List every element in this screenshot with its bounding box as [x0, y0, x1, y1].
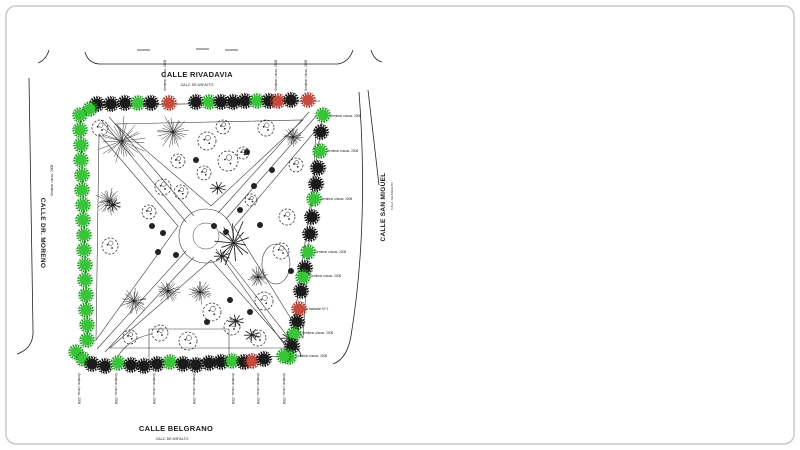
canopy-dot	[201, 171, 203, 173]
trunk-dot	[132, 299, 136, 303]
canopy-outline	[123, 330, 137, 344]
canopy-inner	[129, 333, 133, 337]
canopy-tree-icon	[203, 303, 221, 321]
canopy-outline	[179, 332, 197, 350]
shrub-dot	[244, 149, 250, 155]
planting-annotation: Sembrar c/acac. 2008	[163, 60, 167, 91]
canopy-dot	[150, 213, 152, 215]
burst-ray	[174, 133, 180, 140]
canopy-outline	[155, 179, 171, 195]
tree-fill	[80, 289, 91, 300]
perimeter-tree-icon	[225, 94, 240, 109]
canopy-dot	[265, 302, 267, 304]
planting-annotation: Sembrar c/acac. 2008	[50, 165, 54, 196]
trunk-dot	[256, 275, 260, 279]
canopy-tree-icon	[142, 205, 156, 219]
tree-fill	[239, 95, 250, 106]
planting-annotation: Sembrar c/acac. 2008	[256, 373, 260, 404]
burst-ray	[107, 124, 121, 140]
canopy-dot	[189, 342, 191, 344]
canopy-tree-icon	[92, 120, 108, 136]
planting-annotation: Sembrar c/acac. 2008	[321, 197, 352, 201]
canopy-dot	[293, 163, 295, 165]
tree-fill	[78, 229, 89, 240]
canopy-inner	[186, 335, 191, 340]
tree-fill	[99, 360, 110, 371]
street-line	[368, 90, 379, 185]
transplant-annotation: A trasladar Nº 2	[306, 307, 328, 311]
canopy-outline	[171, 154, 185, 168]
trunk-dot	[171, 130, 175, 134]
shrub-dot	[251, 183, 257, 189]
canopy-dot	[160, 185, 162, 187]
canopy-inner	[205, 135, 210, 140]
perimeter-tree-icon	[312, 143, 327, 158]
shrub-dot	[269, 167, 275, 173]
tree-fill	[215, 96, 226, 107]
starburst-tree-icon	[98, 116, 145, 163]
burst-ray	[103, 142, 120, 153]
trunk-dot	[166, 289, 170, 293]
trunk-dot	[120, 139, 124, 143]
canopy-tree-icon	[258, 120, 274, 136]
shrub-dot	[223, 229, 229, 235]
perimeter-tree-icon	[310, 160, 325, 175]
shrub-dot	[227, 297, 233, 303]
trunk-dot	[291, 135, 295, 139]
starburst-tree-icon	[157, 282, 180, 302]
perimeter-tree-icon	[286, 326, 301, 341]
burst-ray	[105, 203, 109, 212]
canopy-dot	[224, 159, 226, 161]
street-label-west: CALLE DR. MORENO	[39, 198, 46, 269]
burst-ray	[167, 125, 172, 131]
burst-ray	[202, 293, 210, 298]
palm-tree-icon	[210, 182, 226, 195]
canopy-tree-icon	[152, 325, 168, 341]
street-line	[371, 50, 382, 62]
perimeter-tree-icon	[313, 124, 328, 139]
planting-annotation: Sembrar c/acac. 2008	[302, 331, 333, 335]
perimeter-tree-icon	[117, 95, 132, 110]
canopy-outline	[218, 151, 238, 171]
tree-fill	[132, 97, 143, 108]
burst-ray	[103, 129, 120, 140]
burst-ray	[235, 245, 243, 255]
tree-fill	[302, 94, 313, 105]
canopy-dot	[213, 313, 215, 315]
trunk-dot	[221, 255, 223, 257]
walkway-path	[149, 329, 229, 361]
tree-fill	[288, 328, 299, 339]
planting-annotation: Sembrar c/acac. 2008	[282, 373, 286, 404]
canopy-tree-icon	[218, 151, 238, 171]
shrub-dot	[247, 309, 253, 315]
canopy-tree-icon	[289, 158, 303, 172]
canopy-dot	[157, 331, 159, 333]
planting-annotation: Sembrar c/acac. 2008	[231, 373, 235, 404]
palm-tree-icon	[228, 315, 244, 328]
starburst-tree-icon	[248, 266, 268, 286]
canopy-outline	[152, 325, 168, 341]
canopy-inner	[180, 188, 184, 192]
tree-fill	[163, 97, 174, 108]
perimeter-tree-icon	[302, 226, 317, 241]
trunk-dot	[235, 320, 237, 322]
canopy-inner	[280, 246, 284, 250]
canopy-dot	[267, 129, 269, 131]
tree-fill	[78, 244, 89, 255]
tree-fill	[119, 97, 130, 108]
shrub-dot	[155, 249, 161, 255]
canopy-tree-icon	[123, 330, 137, 344]
walkway-path	[96, 134, 178, 340]
canopy-dot	[146, 210, 148, 212]
shrub-dot	[160, 230, 166, 236]
planting-annotation: Sembrar c/acac. 2008	[296, 354, 327, 358]
canopy-inner	[295, 161, 299, 165]
planting-annotation: Sembrar c/acac. 2008	[330, 114, 361, 118]
perimeter-tree-icon	[201, 355, 216, 370]
perimeter-tree-icon	[73, 152, 88, 167]
canopy-outline	[198, 132, 216, 150]
burst-ray	[294, 129, 298, 136]
perimeter-tree-icon	[315, 107, 330, 122]
canopy-outline	[250, 330, 266, 346]
tree-fill	[81, 334, 92, 345]
perimeter-tree-icon	[77, 257, 92, 272]
tree-fill	[272, 95, 283, 106]
street-line	[38, 50, 49, 63]
burst-ray	[199, 294, 200, 301]
canopy-tree-icon	[174, 185, 188, 199]
burst-ray	[292, 128, 293, 135]
walkway-path	[97, 251, 194, 352]
tree-fill	[314, 145, 325, 156]
canopy-tree-icon	[179, 332, 197, 350]
tree-fill	[297, 271, 308, 282]
tree-fill	[86, 358, 97, 369]
street-line	[333, 92, 363, 364]
tree-fill	[312, 162, 323, 173]
tree-fill	[105, 98, 116, 109]
canopy-dot	[184, 339, 186, 341]
burst-ray	[199, 281, 200, 290]
shrub-dot	[204, 319, 210, 325]
perimeter-tree-icon	[79, 332, 94, 347]
perimeter-tree-icon	[149, 356, 164, 371]
tree-fill	[75, 154, 86, 165]
tree-fill	[315, 126, 326, 137]
perimeter-tree-icon	[75, 197, 90, 212]
perimeter-tree-icon	[224, 353, 239, 368]
planting-annotation: Sembrar c/acac. 2008	[327, 149, 358, 153]
tree-fill	[306, 211, 317, 222]
canopy-dot	[297, 166, 299, 168]
tree-fill	[81, 319, 92, 330]
tree-fill	[79, 274, 90, 285]
canopy-dot	[178, 190, 180, 192]
canopy-dot	[208, 142, 210, 144]
perimeter-tree-icon	[76, 227, 91, 242]
canopy-outline	[142, 205, 156, 219]
canopy-outline	[245, 194, 257, 206]
canopy-inner	[222, 123, 226, 127]
canopy-dot	[224, 128, 226, 130]
burst-ray	[260, 278, 268, 284]
tree-fill	[295, 285, 306, 296]
perimeter-tree-icon	[300, 244, 315, 259]
perimeter-tree-icon	[75, 212, 90, 227]
walkway-path	[262, 244, 290, 284]
canopy-dot	[220, 125, 222, 127]
canopy-outline	[102, 238, 118, 254]
tree-fill	[77, 214, 88, 225]
shrub-dot	[257, 222, 263, 228]
canopy-dot	[182, 193, 184, 195]
canopy-outline	[279, 209, 295, 225]
tree-fill	[76, 184, 87, 195]
street-subtitle-south: CALZ. DE ASFALTO	[156, 437, 189, 441]
tree-fill	[278, 350, 289, 361]
perimeter-tree-icon	[84, 356, 99, 371]
burst-ray	[167, 293, 168, 300]
perimeter-tree-icon	[304, 209, 319, 224]
trunk-dot	[198, 290, 202, 294]
plaza-site-plan-page: CALLE RIVADAVIACALZ. DE ASFALTOCALLE BEL…	[0, 0, 800, 450]
perimeter-tree-icon	[306, 191, 321, 206]
tree-fill	[151, 358, 162, 369]
perimeter-tree-icon	[213, 354, 228, 369]
burst-ray	[103, 136, 120, 140]
canopy-inner	[210, 306, 215, 311]
canopy-outline	[258, 120, 274, 136]
canopy-dot	[233, 328, 235, 330]
trunk-dot	[251, 334, 253, 336]
street-subtitle-north: CALZ. DE ASFALTO	[181, 83, 214, 87]
canopy-inner	[177, 157, 181, 161]
street-label-south: CALLE BELGRANO	[139, 424, 213, 433]
palm-tree-icon	[244, 329, 260, 342]
canopy-tree-icon	[155, 179, 171, 195]
tree-fill	[79, 259, 90, 270]
street-line	[137, 49, 238, 50]
tree-fill	[251, 95, 262, 106]
tree-fill	[293, 303, 304, 314]
tree-fill	[310, 178, 321, 189]
perimeter-tree-icon	[76, 242, 91, 257]
tree-fill	[138, 360, 149, 371]
canopy-dot	[131, 338, 133, 340]
page-frame	[6, 6, 794, 444]
perimeter-tree-icon	[162, 354, 177, 369]
burst-ray	[236, 244, 248, 253]
tree-fill	[145, 97, 156, 108]
tree-fill	[84, 103, 95, 114]
burst-ray	[164, 133, 172, 141]
canopy-dot	[203, 139, 205, 141]
perimeter-tree-icon	[73, 137, 88, 152]
starburst-tree-icon	[284, 128, 304, 147]
planting-annotation: Sembrar c/acac. 2008	[315, 250, 346, 254]
planting-annotation: Sembrar c/acac. 2008	[77, 373, 81, 404]
site-plan-drawing: CALLE RIVADAVIACALZ. DE ASFALTOCALLE BEL…	[0, 0, 800, 450]
tree-fill	[177, 358, 188, 369]
tree-fill	[190, 96, 201, 107]
shrub-dot	[149, 223, 155, 229]
tree-fill	[112, 357, 123, 368]
street-line	[17, 78, 33, 354]
canopy-dot	[161, 334, 163, 336]
canopy-dot	[230, 163, 232, 165]
starburst-tree-icon	[189, 281, 211, 304]
perimeter-tree-icon	[143, 95, 158, 110]
perimeter-tree-icon	[74, 182, 89, 197]
canopy-dot	[260, 299, 262, 301]
canopy-inner	[250, 196, 253, 199]
burst-ray	[101, 200, 107, 201]
canopy-dot	[284, 215, 286, 217]
tree-fill	[75, 139, 86, 150]
tree-fill	[164, 356, 175, 367]
tree-fill	[258, 353, 269, 364]
perimeter-tree-icon	[110, 355, 125, 370]
tree-fill	[308, 193, 319, 204]
perimeter-tree-icon	[78, 302, 93, 317]
planting-annotation: Sembrar c/acac. 2008	[304, 60, 308, 91]
perimeter-tree-icon	[79, 317, 94, 332]
tree-fill	[76, 169, 87, 180]
tree-fill	[77, 199, 88, 210]
canopy-inner	[262, 295, 267, 300]
burst-ray	[103, 141, 120, 142]
tree-fill	[302, 246, 313, 257]
shrub-dot	[288, 268, 294, 274]
perimeter-tree-icon	[103, 96, 118, 111]
tree-fill	[203, 96, 214, 107]
planting-annotation: Sembrar c/acac. 2008	[152, 373, 156, 404]
canopy-tree-icon	[198, 132, 216, 150]
burst-ray	[258, 279, 259, 284]
canopy-outline	[174, 185, 188, 199]
canopy-dot	[205, 174, 207, 176]
canopy-dot	[278, 249, 280, 251]
planting-annotation: Sembrar c/acac. 2008	[192, 373, 196, 404]
shrub-dot	[211, 223, 217, 229]
walkway-path	[218, 112, 317, 219]
perimeter-tree-icon	[77, 272, 92, 287]
canopy-inner	[162, 182, 166, 186]
tree-fill	[304, 228, 315, 239]
tree-fill	[74, 109, 85, 120]
perimeter-tree-icon	[74, 167, 89, 182]
canopy-dot	[259, 339, 261, 341]
street-label-east: CALLE SAN MIGUEL	[380, 172, 387, 241]
tree-fill	[246, 355, 257, 366]
canopy-outline	[289, 158, 303, 172]
perimeter-tree-icon	[130, 95, 145, 110]
tree-fill	[74, 124, 85, 135]
canopy-tree-icon	[171, 154, 185, 168]
starburst-tree-icon	[157, 117, 188, 148]
canopy-tree-icon	[279, 209, 295, 225]
canopy-outline	[255, 292, 273, 310]
canopy-outline	[197, 166, 211, 180]
perimeter-tree-icon	[161, 95, 176, 110]
canopy-dot	[288, 218, 290, 220]
tree-fill	[125, 359, 136, 370]
burst-ray	[234, 245, 235, 261]
canopy-dot	[101, 129, 103, 131]
burst-ray	[124, 141, 144, 143]
canopy-inner	[203, 169, 207, 173]
canopy-tree-icon	[255, 292, 273, 310]
canopy-dot	[252, 201, 254, 203]
shrub-dot	[193, 157, 199, 163]
street-subtitle-east: CALZ. DE ASFALTO	[390, 182, 394, 210]
canopy-dot	[107, 244, 109, 246]
planting-annotation: Sembrar c/acac. 2008	[310, 274, 341, 278]
canopy-dot	[164, 188, 166, 190]
canopy-tree-icon	[102, 238, 118, 254]
trunk-dot	[232, 241, 236, 245]
burst-ray	[123, 125, 135, 140]
canopy-dot	[97, 126, 99, 128]
canopy-outline	[92, 120, 108, 136]
tree-fill	[317, 109, 328, 120]
canopy-tree-icon	[250, 330, 266, 346]
canopy-dot	[208, 310, 210, 312]
perimeter-tree-icon	[300, 92, 315, 107]
burst-ray	[122, 116, 124, 139]
canopy-inner	[148, 208, 152, 212]
perimeter-tree-icon	[97, 358, 112, 373]
perimeter-tree-icon	[256, 351, 271, 366]
canopy-inner	[265, 123, 269, 127]
shrub-dot	[237, 207, 243, 213]
canopy-dot	[179, 162, 181, 164]
street-label-north: CALLE RIVADAVIA	[161, 70, 233, 79]
trunk-dot	[217, 187, 219, 189]
canopy-outline	[216, 120, 230, 134]
canopy-inner	[109, 241, 113, 245]
street-line	[85, 50, 353, 64]
shrub-dot	[173, 252, 179, 258]
canopy-dot	[111, 247, 113, 249]
perimeter-tree-icon	[308, 176, 323, 191]
planting-annotation: Sembrar c/acac. 2008	[114, 373, 118, 404]
canopy-inner	[159, 328, 163, 332]
canopy-inner	[286, 212, 290, 216]
canopy-tree-icon	[216, 120, 230, 134]
tree-fill	[190, 359, 201, 370]
perimeter-tree-icon	[78, 287, 93, 302]
tree-fill	[80, 304, 91, 315]
burst-ray	[294, 129, 297, 135]
planting-annotation: Sembrar c/acac. 2008	[274, 60, 278, 91]
canopy-inner	[226, 155, 232, 161]
tree-fill	[285, 94, 296, 105]
perimeter-tree-icon	[136, 358, 151, 373]
canopy-dot	[263, 126, 265, 128]
canopy-tree-icon	[197, 166, 211, 180]
canopy-inner	[99, 123, 103, 127]
perimeter-tree-icon	[188, 94, 203, 109]
canopy-outline	[203, 303, 221, 321]
canopy-dot	[175, 159, 177, 161]
canopy-tree-icon	[245, 194, 257, 206]
canopy-dot	[127, 335, 129, 337]
